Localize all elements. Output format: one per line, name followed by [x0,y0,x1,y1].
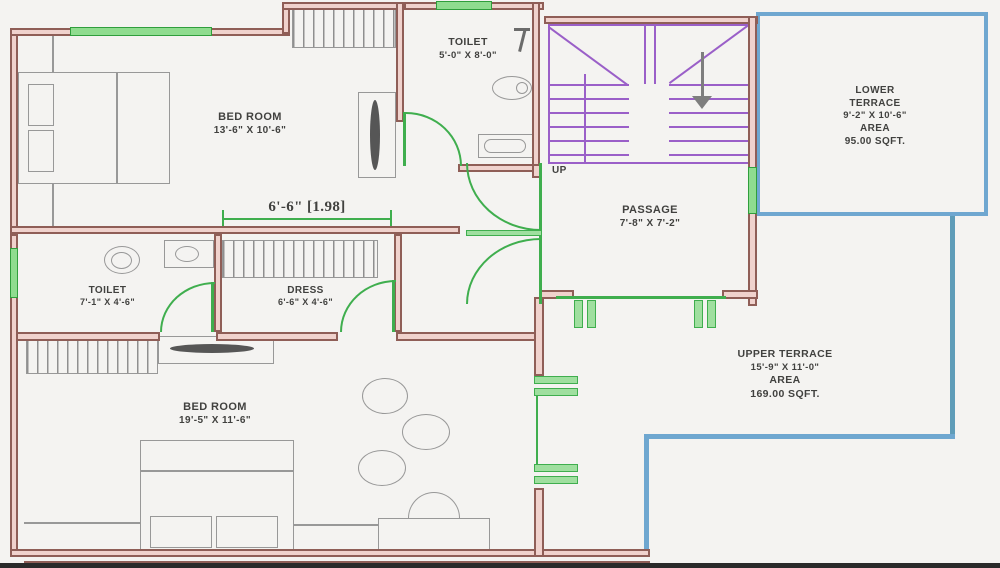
wall-band-bottom-2 [216,332,338,341]
room-name: DRESS [248,284,363,297]
door-arc-toilet2 [160,282,215,332]
chair [362,378,408,414]
stair-arrow-shaft [701,52,704,98]
room-name: UPPER TERRACE [700,348,870,362]
wall-top-right [282,2,404,10]
room-dims: 19'-5" X 11'-6" [135,414,295,427]
railing-bar [534,376,578,384]
terrace-divider-line [950,216,955,438]
wall-bedroom1-bottom [10,226,460,234]
room-label-passage: PASSAGE 7'-8" X 7'-2" [575,203,725,230]
staircase-center-rail [654,24,656,84]
room-label-upper-terrace: UPPER TERRACE 15'-9" X 11'-0" AREA 169.0… [700,348,870,401]
wall-toilet1-right [532,2,540,174]
upper-terrace-left-line [644,434,649,552]
wall-stair-top [544,16,758,24]
stair-tread [669,154,749,156]
room-label-bedroom2: BED ROOM 19'-5" X 11'-6" [135,400,295,427]
stair-tread [669,140,749,142]
wall-toilet2-dress-divider [214,234,222,332]
area-label: AREA [700,374,870,388]
side-table-round [408,492,460,518]
wardrobe [26,336,158,374]
room-name: BED ROOM [155,110,345,124]
cupboard-handle [370,100,380,170]
wash-basin-bowl [175,246,199,262]
pillow [28,130,54,172]
blanket-line [116,73,118,183]
floor-line [24,522,140,524]
area-value: 169.00 SQFT. [700,388,870,402]
railing-bar [534,388,578,396]
wash-basin-bowl [484,139,526,153]
wall-band-bottom-3 [396,332,540,341]
stair-tread [669,126,749,128]
wall-passage-corner-right-h [722,290,758,299]
dimension-text: 6'-6" [1.98] [222,198,392,218]
stair-tread [549,112,629,114]
pillow [28,84,54,126]
room-dims: 15'-9" X 11'-0" [700,362,870,374]
chair [358,450,406,486]
staircase-center-rail [644,24,646,84]
room-name: LOWER [795,84,955,97]
door-arc-bedroom1 [466,163,541,231]
shower-icon [518,28,527,52]
room-dims: 6'-6" X 4'-6" [248,297,363,309]
room-label-toilet1: TOILET 5'-0" X 8'-0" [418,36,518,62]
railing-bar [534,464,578,472]
room-dims: 7'-8" X 7'-2" [575,217,725,230]
room-label-lower-terrace: LOWER TERRACE 9'-2" X 10'-6" AREA 95.00 … [795,84,955,148]
stair-direction-label: UP [552,164,582,177]
wall-band-bottom-1 [10,332,160,341]
chair [402,414,450,450]
wardrobe [292,8,396,48]
pillar [694,300,703,328]
wc-bowl [111,252,132,269]
image-bottom-bar [0,563,1000,568]
passage-open-edge [556,296,726,299]
pillow [216,516,278,548]
wall-toilet1-left [396,2,404,122]
door-arc-toilet1 [406,112,462,166]
area-label: AREA [795,122,955,135]
blanket-line [140,470,294,472]
floor-line [52,36,54,72]
pillar [587,300,596,328]
railing-connector [536,396,538,464]
pillar [707,300,716,328]
pillar [574,300,583,328]
room-name: BED ROOM [135,400,295,414]
window-passage-right [748,167,757,214]
dimension-line [222,218,392,220]
room-name: PASSAGE [575,203,725,217]
wall-left-upper [10,28,18,234]
room-dims: 5'-0" X 8'-0" [418,50,518,62]
room-dims: 7'-1" X 4'-6" [50,297,165,309]
room-dims: 9'-2" X 10'-6" [795,110,955,122]
wall-passage-right [748,16,757,306]
room-dims: 13'-6" X 10'-6" [155,124,345,137]
area-value: 95.00 SQFT. [795,135,955,148]
floor-plan: 6'-6" [1.98] BED ROOM 13'-6" X 10'-6" TO… [0,0,1000,568]
room-name: TERRACE [795,97,955,110]
stair-tread [549,98,629,100]
shower-icon [514,28,530,31]
room-label-bedroom1: BED ROOM 13'-6" X 10'-6" [155,110,345,137]
room-label-dress: DRESS 6'-6" X 4'-6" [248,284,363,309]
door-arc-bedroom2 [466,238,541,304]
room-name: TOILET [50,284,165,297]
pillow [150,516,212,548]
stair-tread [669,112,749,114]
stair-tread [549,140,629,142]
shelf-item [170,344,254,353]
stair-tread [669,84,749,86]
door-threshold [466,230,542,236]
upper-terrace-bottom-line [644,434,955,439]
wardrobe [222,240,378,278]
wall-bedroom2-right-lower [534,488,544,557]
railing-bar [534,476,578,484]
stair-tread [549,126,629,128]
window-left-wall [10,248,18,298]
wc-flush [516,82,528,94]
cabinet [378,518,490,550]
room-label-toilet2: TOILET 7'-1" X 4'-6" [50,284,165,309]
floor-line [52,184,54,226]
floor-line [294,524,378,526]
stair-arrow-down-icon [692,96,712,109]
wall-bottom-outer [10,549,650,557]
wall-bedroom2-right-upper [534,297,544,376]
window-toilet1-top [436,1,492,10]
stair-tread [549,84,629,86]
room-name: TOILET [418,36,518,50]
stair-tread [549,154,629,156]
window-bedroom1-top [70,27,212,36]
stair-flight-rail [584,74,586,162]
